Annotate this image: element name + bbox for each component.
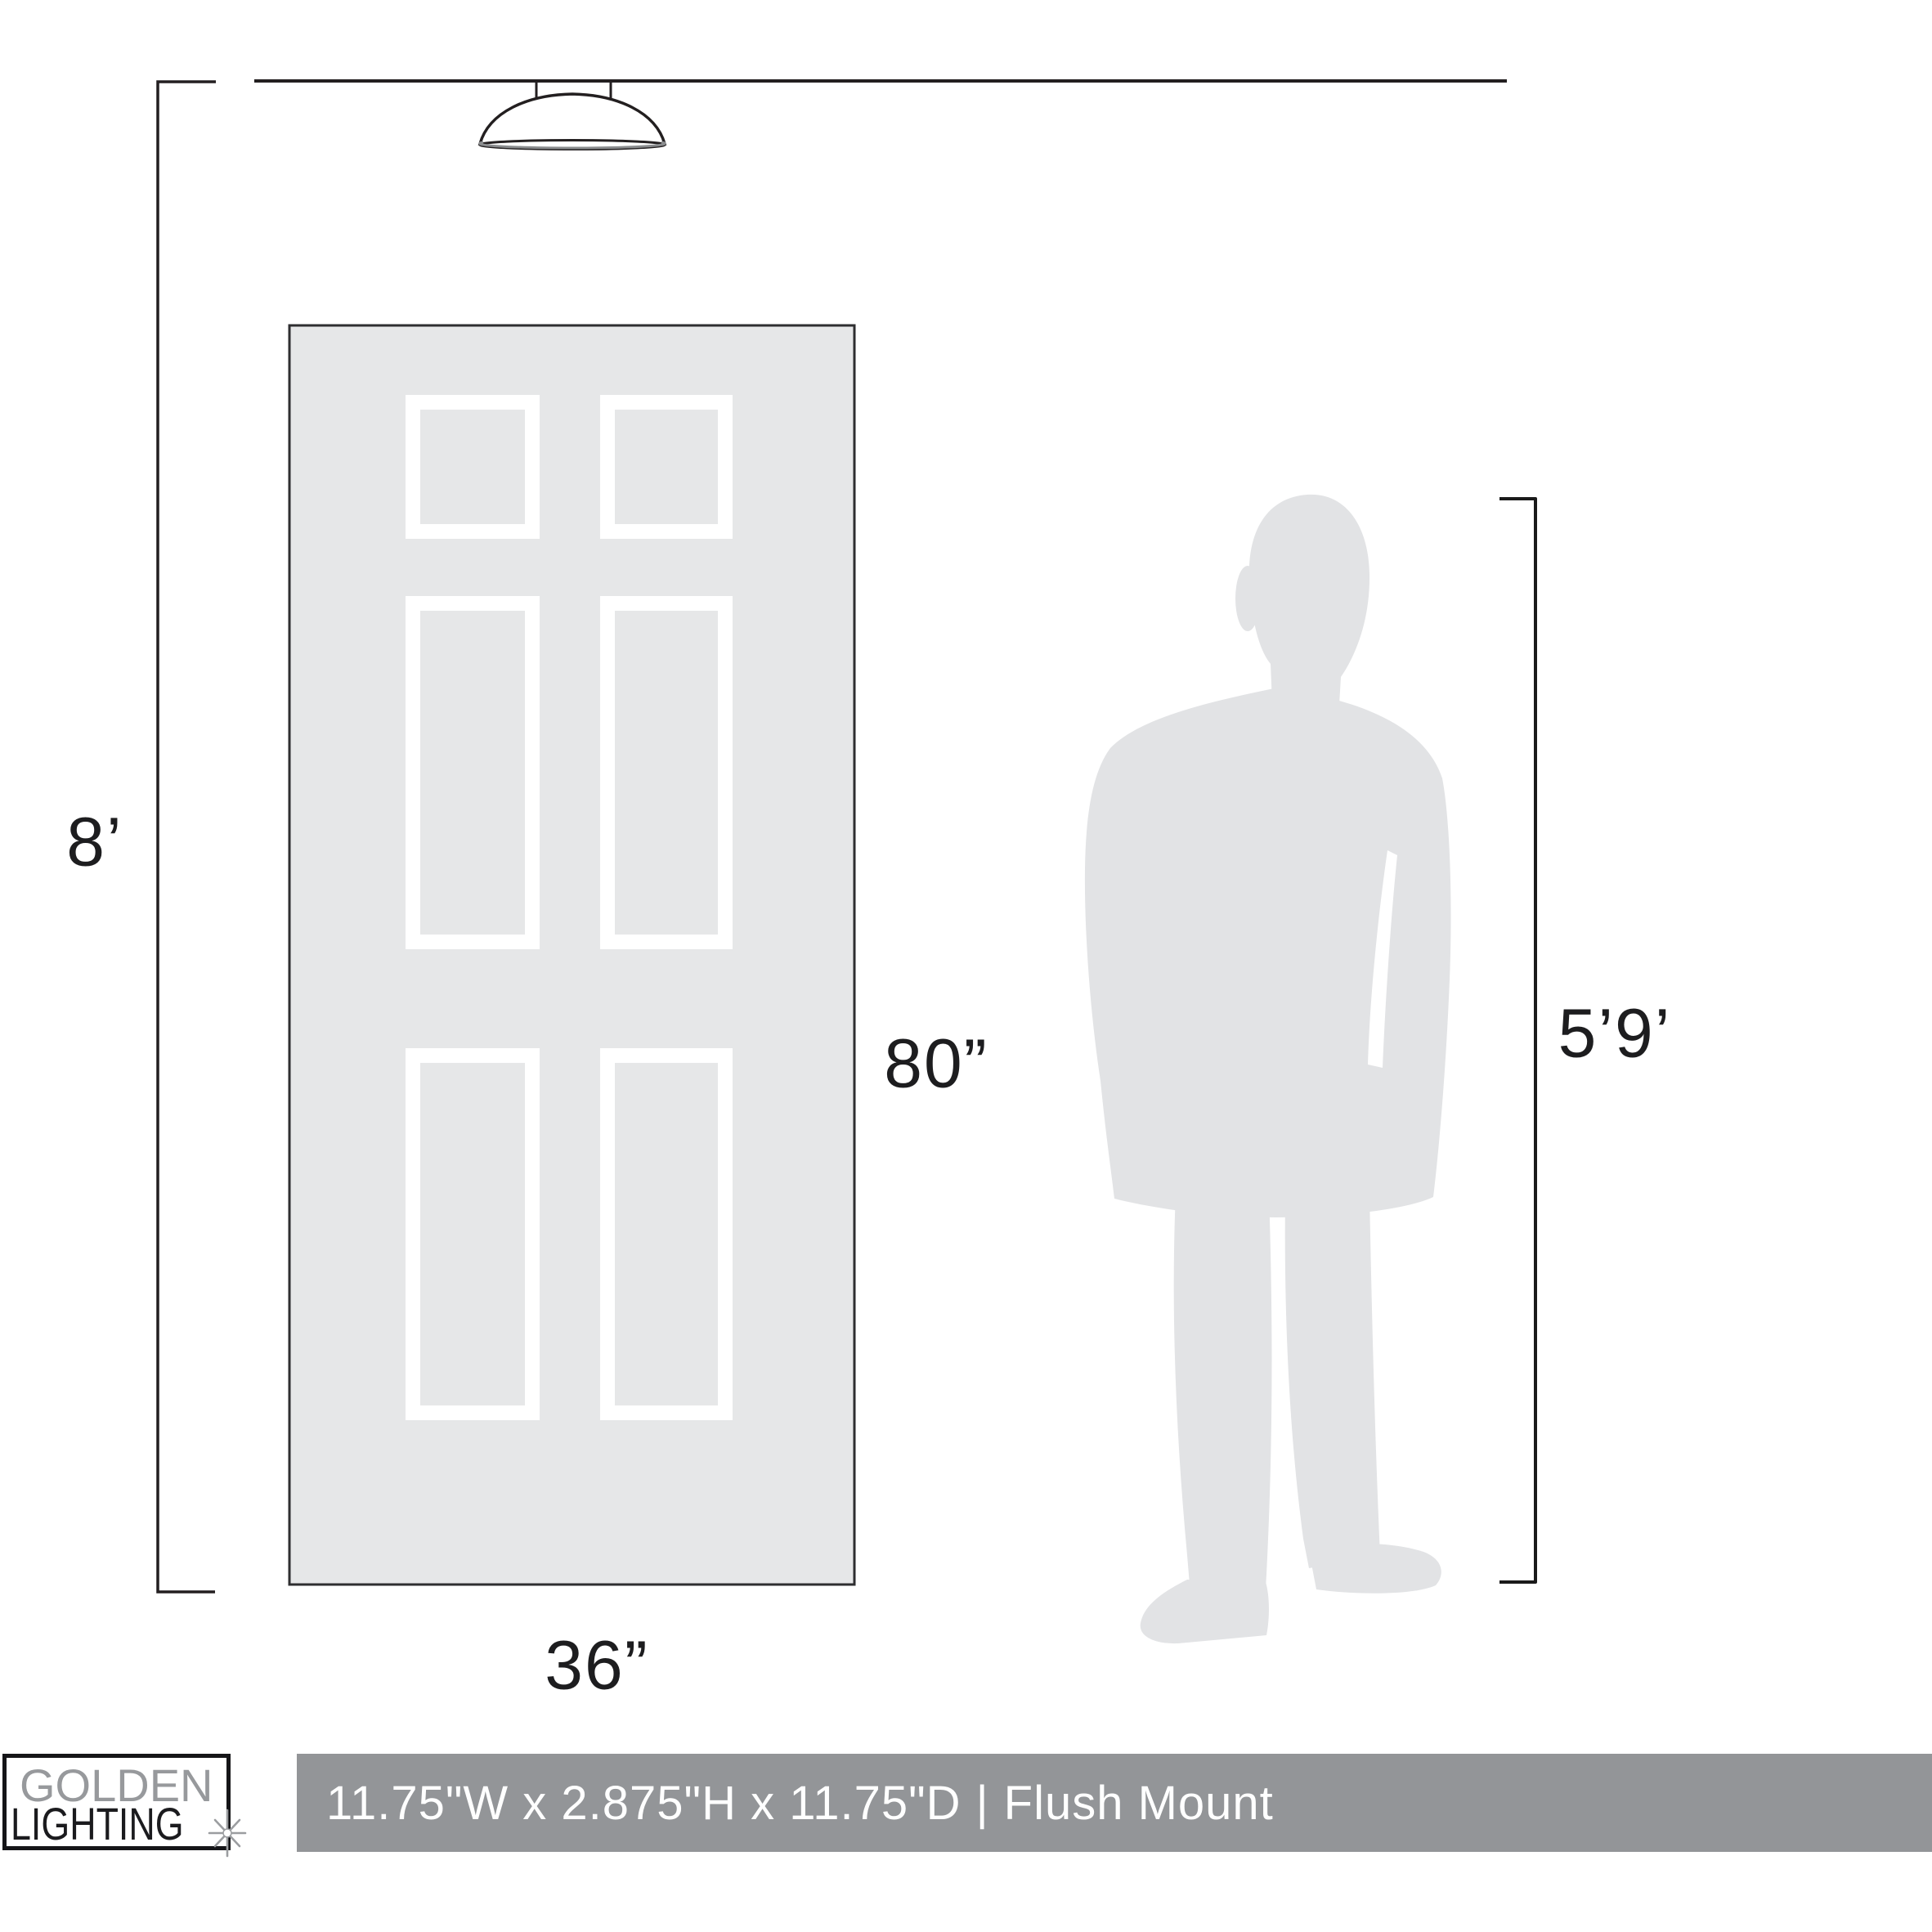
man-silhouette [1085,495,1451,1643]
door-height-label: 80” [884,1024,988,1104]
scale-diagram-canvas: 8’ 80” 36” 5’9’ 11.75"W x 2.875"H x 11.7… [0,0,1932,1932]
diagram-artwork [0,0,1932,1932]
spec-mount-type: Flush Mount [1004,1776,1274,1831]
ceiling-height-label: 8’ [66,803,123,882]
ceiling-height-bracket [158,82,216,1592]
spec-dimensions: 11.75"W x 2.875"H x 11.75"D [326,1776,962,1831]
spec-separator: | [976,1776,989,1831]
spec-bar: 11.75"W x 2.875"H x 11.75"D | Flush Moun… [297,1754,1932,1852]
door-width-label: 36” [545,1626,648,1706]
sparkle-star-icon [204,1809,250,1858]
person-height-bracket [1499,499,1535,1582]
door [289,325,854,1585]
person-height-label: 5’9’ [1558,994,1672,1074]
flush-mount-fixture [480,83,666,150]
brand-logo: GOLDEN LIGHTING [2,1754,231,1850]
brand-name-line2: LIGHTING [11,1801,184,1847]
